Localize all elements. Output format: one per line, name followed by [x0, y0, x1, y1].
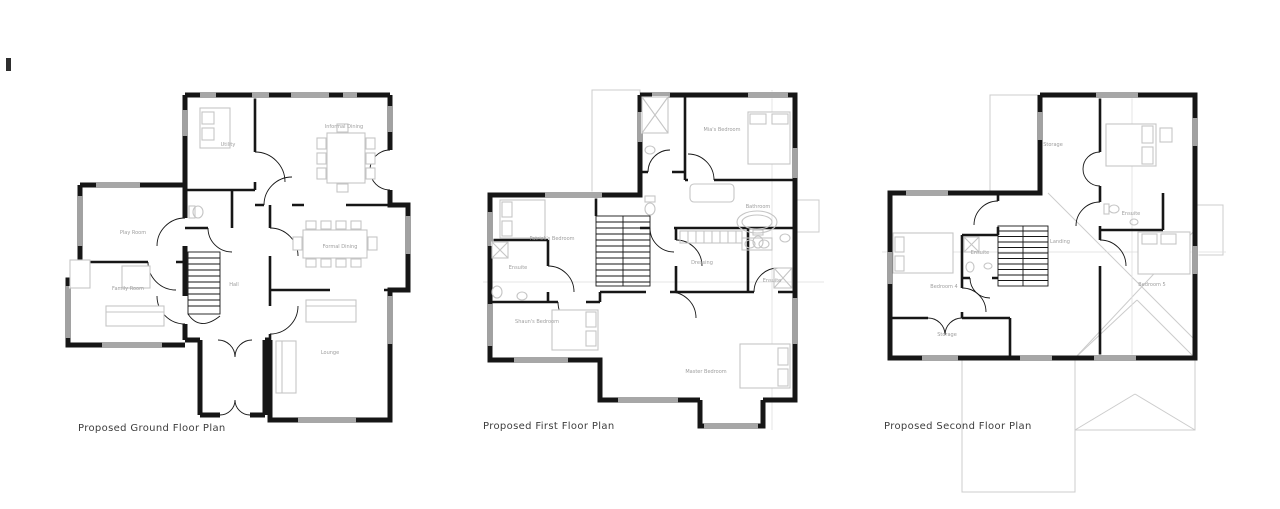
scan-artifact: [6, 58, 11, 71]
first-stairs: [596, 216, 650, 286]
room-label-hall: Hall: [229, 282, 239, 288]
second-doors: [928, 152, 1126, 335]
room-label-storage-top: Storage: [1043, 142, 1063, 148]
second-floor-caption: Proposed Second Floor Plan: [884, 421, 1032, 432]
room-label-storage-bottom: Storage: [937, 332, 957, 338]
first-floor-caption: Proposed First Floor Plan: [483, 421, 615, 432]
room-label-family-room: Family Room: [112, 286, 144, 292]
room-label-patricks-bedroom: Patrick's Bedroom: [529, 236, 574, 242]
room-label-mias-bedroom: Mia's Bedroom: [704, 127, 741, 133]
room-label-bathroom: Bathroom: [746, 204, 771, 210]
room-label-lounge: Lounge: [321, 350, 339, 356]
ground-stairs: [188, 252, 220, 324]
room-label-dressing: Dressing: [691, 260, 713, 266]
room-label-master-bedroom: Master Bedroom: [685, 369, 726, 375]
room-label-bedroom-4: Bedroom 4: [930, 284, 957, 290]
second-stairs: [998, 226, 1048, 286]
room-label-ensuite-right: Ensuite: [763, 278, 782, 284]
room-label-play-room: Play Room: [120, 230, 146, 236]
room-label-utility: Utility: [221, 142, 236, 148]
room-label-ensuite-left: Ensuite: [509, 265, 528, 271]
room-label-formal-dining: Formal Dining: [323, 244, 358, 250]
first-doors: [548, 150, 778, 328]
ground-floor-caption: Proposed Ground Floor Plan: [78, 423, 226, 434]
second-roof-outlines: [882, 95, 1226, 492]
room-label-bedroom-5: Bedroom 5: [1138, 282, 1165, 288]
room-label-ensuite-right: Ensuite: [1122, 211, 1141, 217]
floor-plan-sheet: Utility Informal Dining Play Room Formal…: [0, 0, 1280, 509]
first-room-labels: Mia's Bedroom Bathroom Patrick's Bedroom…: [509, 127, 782, 375]
room-label-ensuite-left: Ensuite: [971, 250, 990, 256]
second-floor-drawing: Storage Ensuite Landing Ensuite Bedroom …: [878, 85, 1230, 497]
ground-floor-drawing: Utility Informal Dining Play Room Formal…: [60, 85, 440, 445]
first-floor-drawing: Mia's Bedroom Bathroom Patrick's Bedroom…: [478, 85, 828, 475]
room-label-shauns-bedroom: Shaun's Bedroom: [515, 319, 559, 325]
room-label-landing: Landing: [1050, 239, 1070, 245]
room-label-informal-dining: Informal Dining: [325, 124, 363, 130]
